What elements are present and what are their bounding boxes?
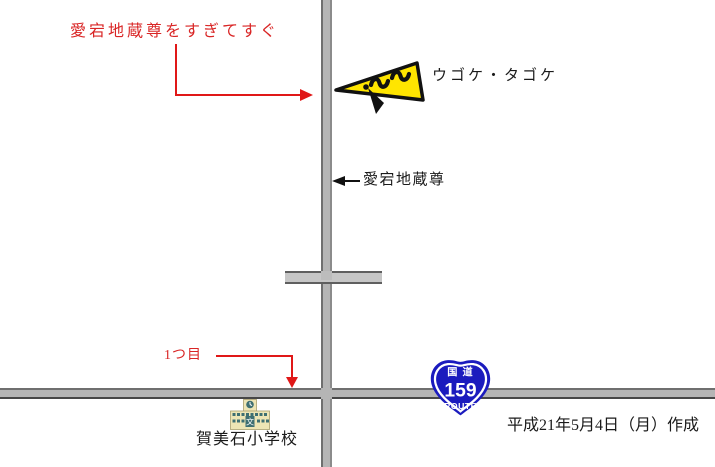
horizontal-road-route159 (0, 388, 715, 399)
top-note-label: 愛宕地蔵尊をすぎてすぐ (70, 22, 279, 41)
road-intersection-patch (321, 388, 332, 399)
first-turn-arrow-icon (286, 377, 298, 388)
jizoson-arrow-line (345, 180, 360, 182)
jizoson-label: 愛宕地蔵尊 (363, 171, 446, 189)
school-map-symbol: 文 (246, 417, 254, 427)
creation-date-label: 平成21年5月4日（月）作成 (507, 416, 699, 435)
top-note-connector-vline (175, 44, 177, 95)
first-turn-connector-hline (216, 355, 292, 357)
first-turn-connector-vline (291, 355, 293, 378)
glider-site-label: ウゴケ・タゴケ (432, 67, 558, 85)
hang-glider-icon (333, 57, 429, 122)
road-junction-patch (321, 271, 332, 280)
shield-kokudo-text: 国道 (447, 365, 477, 378)
top-note-arrow-icon (300, 89, 313, 101)
jizoson-arrow-icon (332, 176, 345, 186)
route-159-shield-icon: 国道 159 ROUTE (427, 357, 494, 424)
shield-route-word: ROUTE (444, 401, 477, 411)
first-turn-label: 1つ目 (164, 348, 202, 365)
hand-drawn-route-map: 愛宕地蔵尊をすぎてすぐ ウゴケ・タゴケ 愛宕地蔵尊 1つ目 国道 159 ROU… (0, 0, 715, 467)
side-street-stub (285, 271, 382, 284)
school-name-label: 賀美石小学校 (196, 430, 298, 449)
top-note-connector-hline (175, 94, 301, 96)
shield-number-text: 159 (444, 381, 476, 402)
